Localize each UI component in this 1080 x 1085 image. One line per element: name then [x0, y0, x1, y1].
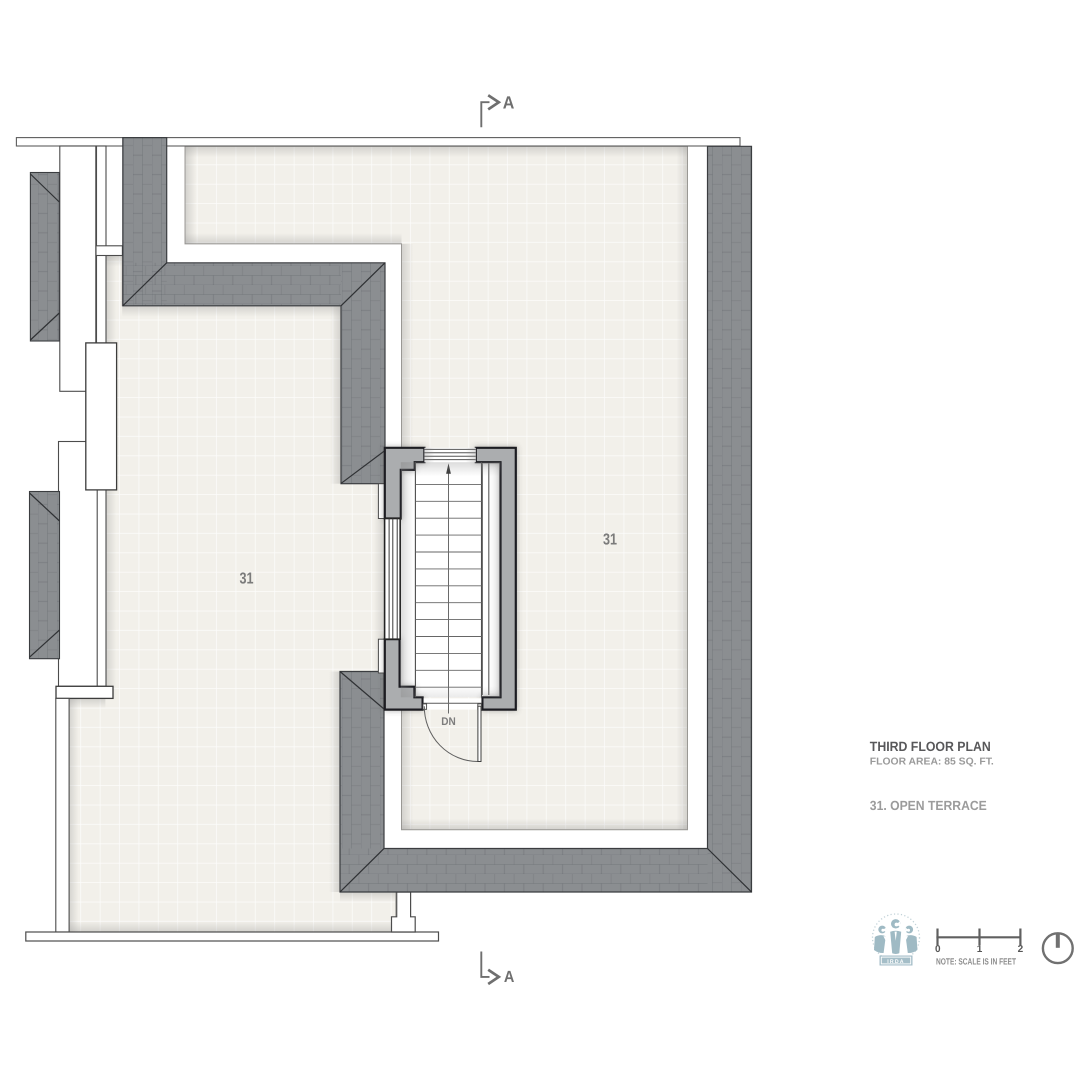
svg-text:A: A	[504, 968, 515, 986]
svg-text:2: 2	[1018, 944, 1024, 955]
svg-text:1: 1	[977, 944, 983, 955]
svg-text:NOTE: SCALE IS IN FEET: NOTE: SCALE IS IN FEET	[936, 956, 1016, 966]
svg-text:THIRD FLOOR PLAN: THIRD FLOOR PLAN	[870, 739, 991, 754]
svg-text:31: 31	[603, 532, 617, 549]
svg-text:31: 31	[240, 571, 254, 588]
svg-text:DN: DN	[441, 716, 456, 728]
svg-text:FLOOR AREA: 85 SQ. FT.: FLOOR AREA: 85 SQ. FT.	[870, 757, 994, 768]
svg-text:31. OPEN TERRACE: 31. OPEN TERRACE	[870, 798, 987, 813]
svg-text:0: 0	[935, 944, 941, 955]
svg-text:IRDA: IRDA	[887, 959, 904, 965]
svg-text:A: A	[503, 92, 515, 112]
